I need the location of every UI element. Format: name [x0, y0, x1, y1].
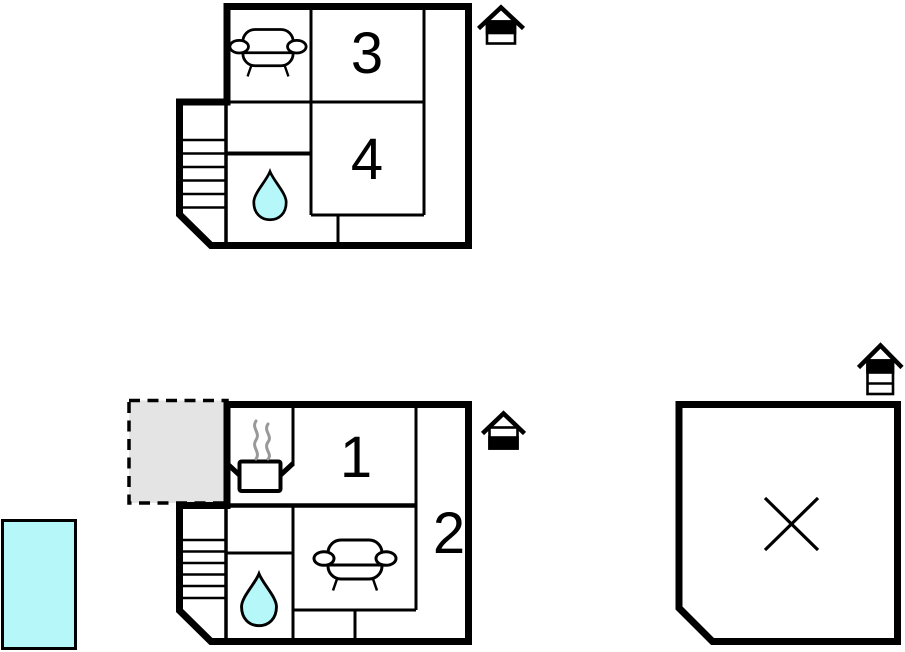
- house-ground-floor-icon: [483, 414, 525, 449]
- swimming-pool: [3, 521, 76, 649]
- room-1-label: 1: [340, 425, 372, 490]
- upper-floor-plan: 3 4: [180, 7, 469, 246]
- floorplan-canvas: 3 4: [0, 0, 905, 652]
- room-2-label: 2: [433, 501, 465, 566]
- ground-floor-plan: 1 2: [129, 401, 469, 642]
- outbuilding-plot: [679, 405, 898, 642]
- room-3-label: 3: [351, 21, 383, 86]
- terrace-dashed-area: [129, 401, 227, 504]
- room-4-label: 4: [351, 127, 383, 192]
- house-attic-icon: [859, 346, 903, 395]
- floorplan-drawing: 3 4: [0, 0, 905, 652]
- house-upper-floor-icon: [479, 8, 524, 44]
